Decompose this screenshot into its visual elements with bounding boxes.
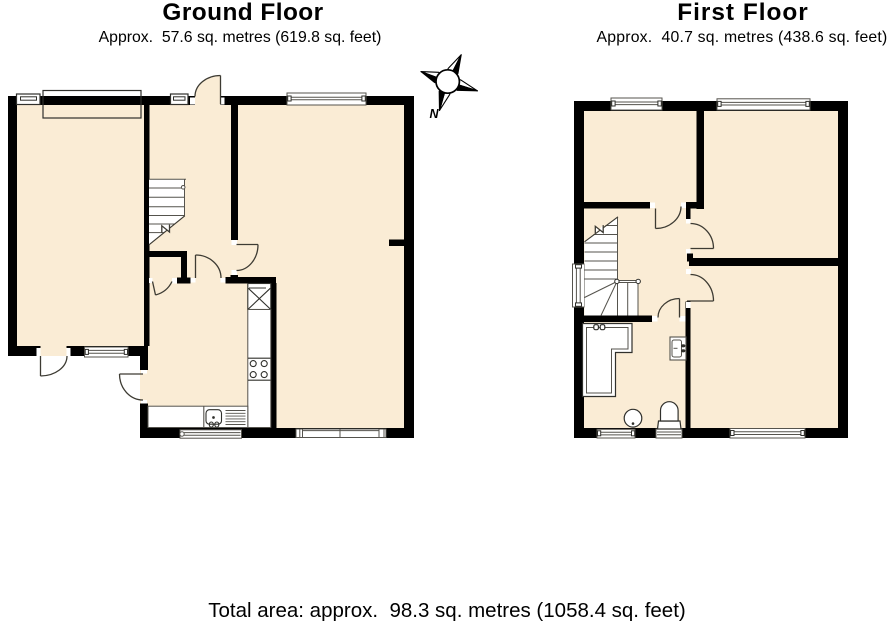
svg-text:N: N bbox=[430, 107, 440, 121]
